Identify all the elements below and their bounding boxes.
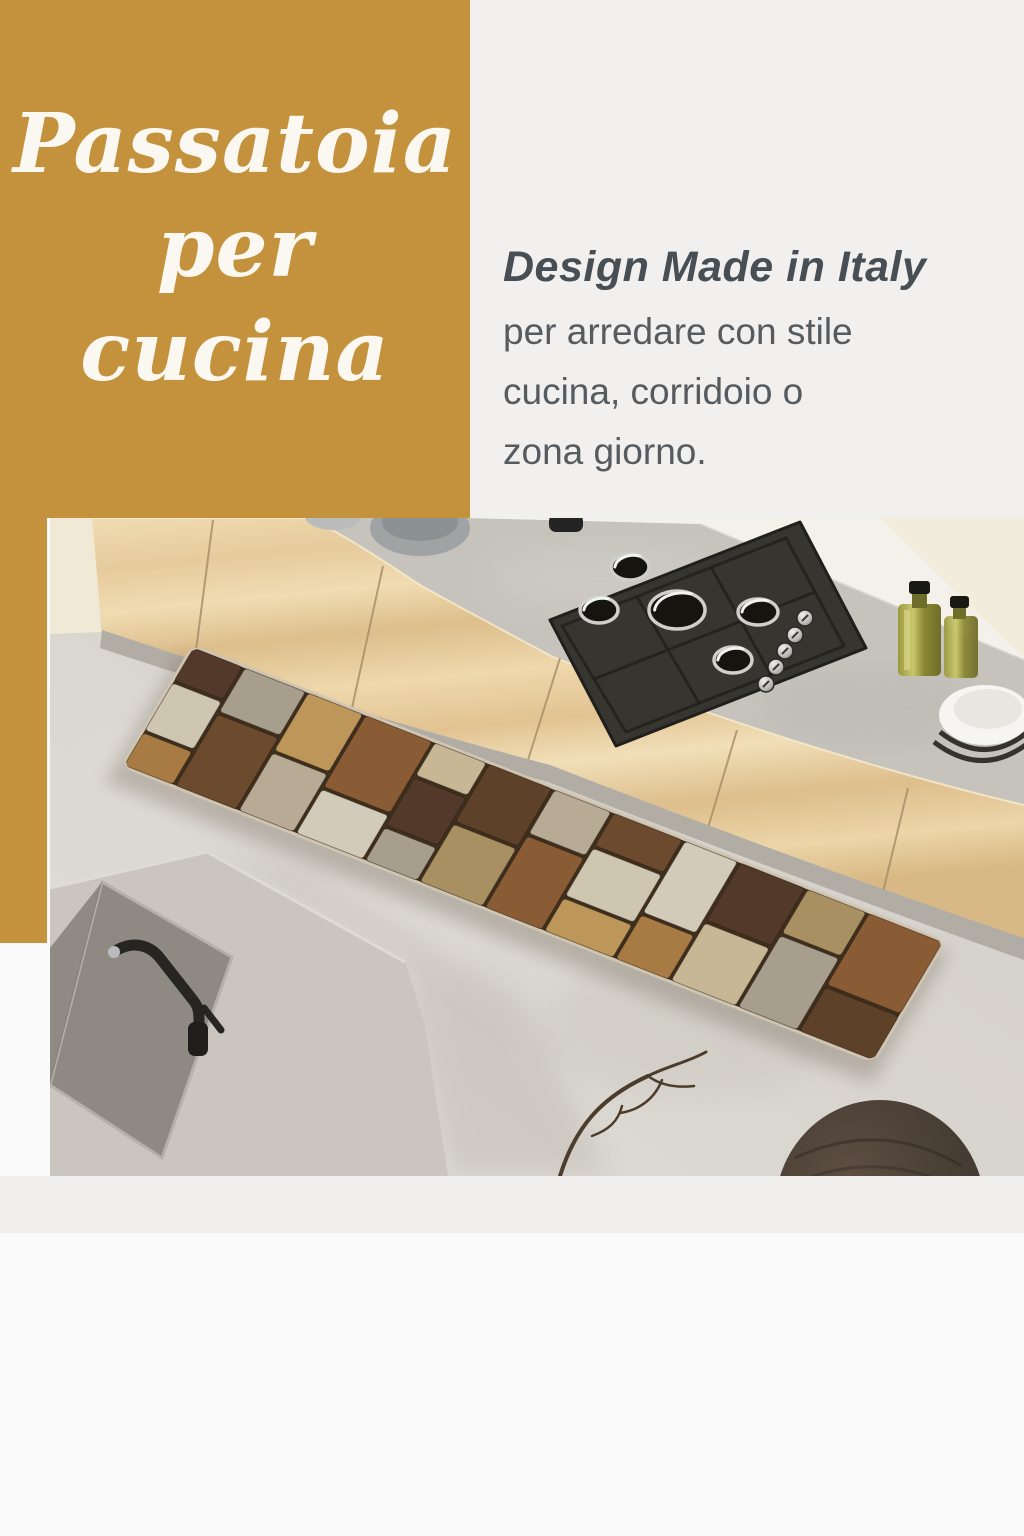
bottom-background-band — [0, 1176, 1024, 1233]
product-title-line1: Passatoia — [13, 96, 457, 192]
product-title: Passatoia per cucina — [0, 0, 470, 404]
description-line: cucina, corridoio o — [503, 362, 1003, 422]
product-title-line2: per cucina — [80, 200, 389, 400]
product-marketing-image: Passatoia per cucina Design Made in Ital… — [0, 0, 1024, 1536]
hero-gold-panel: Passatoia per cucina — [0, 0, 470, 518]
description-line: zona giorno. — [503, 422, 1003, 482]
gold-side-strip — [0, 518, 47, 943]
description-block: Design Made in Italy per arredare con st… — [503, 243, 1003, 482]
pepper-mill — [549, 518, 583, 532]
description-line: per arredare con stile — [503, 302, 1003, 362]
description-heading: Design Made in Italy — [503, 243, 1003, 292]
kitchen-photo — [50, 518, 1024, 1176]
